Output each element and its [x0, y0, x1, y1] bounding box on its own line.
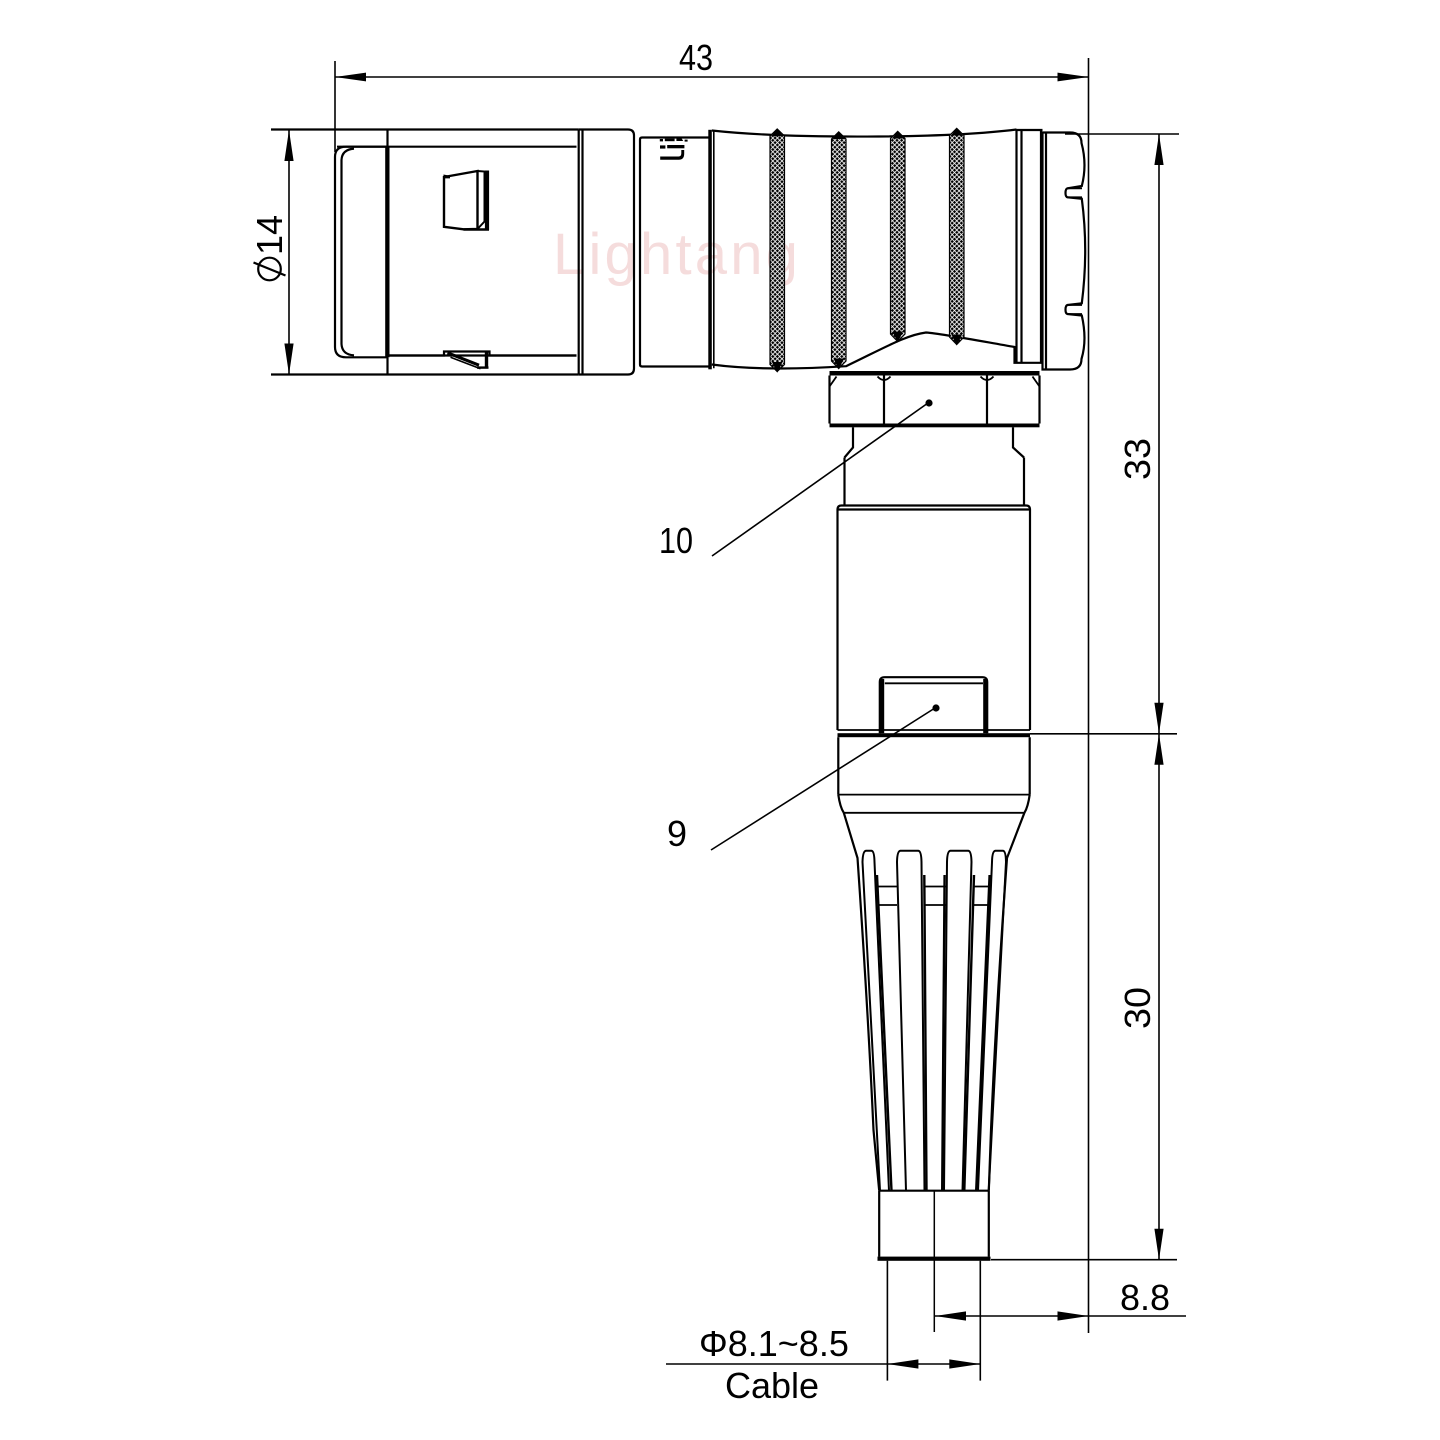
svg-text:9: 9	[667, 813, 687, 854]
svg-text:10: 10	[659, 520, 693, 561]
svg-text:43: 43	[679, 37, 713, 78]
svg-text:Φ8.1~8.5: Φ8.1~8.5	[699, 1323, 849, 1364]
svg-text:30: 30	[1117, 987, 1158, 1029]
svg-text:8.8: 8.8	[1120, 1277, 1170, 1318]
svg-text:33: 33	[1117, 438, 1158, 480]
svg-text:Lightang: Lightang	[553, 222, 801, 287]
svg-text:Cable: Cable	[725, 1365, 819, 1406]
svg-text:14: 14	[249, 215, 290, 255]
